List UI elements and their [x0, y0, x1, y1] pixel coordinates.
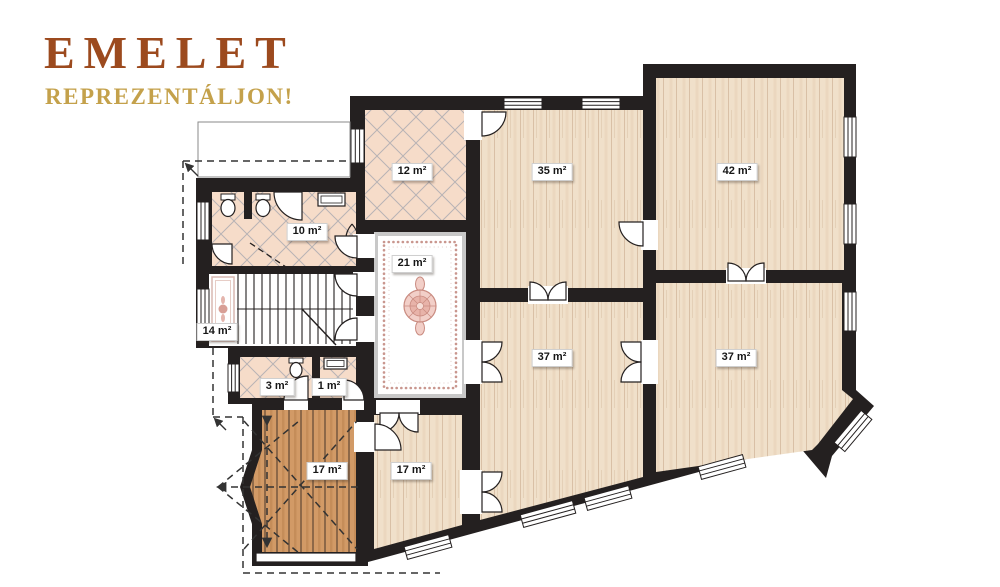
- room-label-room-top-right: 42 m²: [717, 163, 758, 181]
- room-label-room-mid-left: 37 m²: [532, 349, 573, 367]
- room-label-terrace: 17 m²: [307, 462, 348, 480]
- window: [197, 202, 209, 240]
- room-label-room-top-middle: 35 m²: [532, 163, 573, 181]
- room-label-bathroom: 10 m²: [287, 223, 328, 241]
- room-label-closet: 1 m²: [312, 378, 347, 396]
- toilet-icon: [289, 358, 303, 378]
- floor-room-35: [480, 110, 643, 288]
- window: [504, 98, 542, 109]
- floorplan-page: EMELET REPREZENTÁLJON!: [0, 0, 1000, 587]
- window: [844, 117, 856, 157]
- room-label-hall: 21 m²: [392, 255, 433, 273]
- room-label-wc: 3 m²: [260, 378, 295, 396]
- stall-wall: [244, 192, 252, 219]
- window: [844, 292, 856, 331]
- sink-icon: [324, 358, 347, 369]
- room-label-room-mid-right: 37 m²: [716, 349, 757, 367]
- toilet-icon: [221, 194, 235, 217]
- lower-roof: [198, 122, 350, 177]
- room-label-staircase: 14 m²: [197, 323, 238, 341]
- window: [351, 129, 364, 163]
- floorplan-drawing: [0, 0, 1000, 587]
- window: [582, 98, 620, 109]
- window: [228, 364, 239, 392]
- room-label-room-bottom: 17 m²: [391, 462, 432, 480]
- window: [844, 204, 856, 244]
- terrace-railing: [256, 553, 356, 562]
- toilet-icon: [256, 194, 270, 217]
- window: [197, 289, 209, 327]
- sink-icon: [318, 193, 345, 206]
- room-label-tiled-room: 12 m²: [392, 163, 433, 181]
